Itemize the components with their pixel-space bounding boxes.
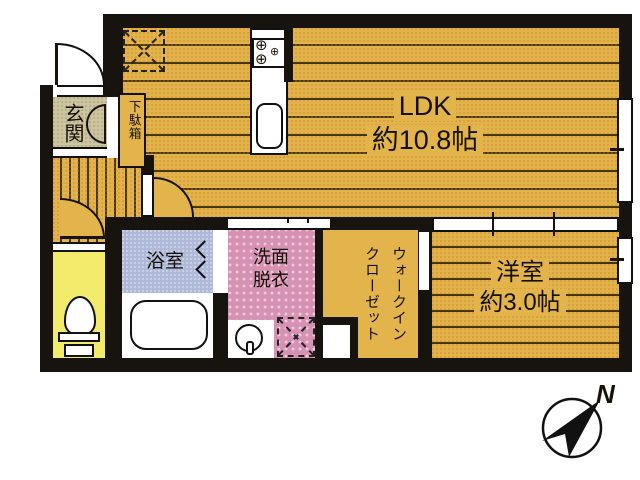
room-western-name: 洋室 xyxy=(491,259,549,286)
room-washroom-label: 洗面 脱衣 xyxy=(230,246,312,291)
toilet-seat xyxy=(58,332,100,342)
room-wic-label: ウォークイン クローゼット xyxy=(350,234,412,354)
wall-bottom xyxy=(40,358,632,372)
wic-western-opening xyxy=(419,232,429,290)
refrigerator-space xyxy=(123,30,165,72)
room-western-size: 約3.0帖 xyxy=(474,289,565,316)
wall-above-wic xyxy=(330,217,432,230)
room-bathroom-label: 浴室 xyxy=(127,250,203,274)
ldk-door-leaf xyxy=(141,173,154,217)
toilet-tank xyxy=(64,344,94,357)
room-entrance-label: 玄関 xyxy=(59,101,84,145)
western-sliding-door-tick xyxy=(492,212,494,236)
entrance-door-leaf xyxy=(55,43,58,85)
toilet-threshold xyxy=(53,242,105,252)
entrance-step xyxy=(53,147,107,158)
shoe-cabinet-label: 下駄箱 xyxy=(125,100,141,141)
bathroom-door-opening xyxy=(213,230,228,293)
wall-toilet-bath xyxy=(105,230,122,358)
toilet-door-leaf xyxy=(60,236,105,239)
western-window-tick xyxy=(610,258,624,261)
stove-burner-icon: ⊕ xyxy=(255,52,268,67)
entrance-door-threshold xyxy=(57,85,103,97)
ldk-window-tick xyxy=(610,148,624,151)
washing-machine-space xyxy=(277,317,315,357)
hallway-floor-ext xyxy=(118,168,141,217)
wall-ldk-left xyxy=(103,14,123,97)
stove-burner-icon: ⊕ xyxy=(270,47,279,58)
wall-hall-bath xyxy=(105,217,228,230)
kitchen-sink xyxy=(256,103,283,149)
room-ldk-name: LDK xyxy=(394,91,457,121)
bathtub xyxy=(130,300,208,350)
wall-left xyxy=(40,85,53,372)
washroom-sliding-door-tick xyxy=(307,217,309,223)
washbasin-faucet xyxy=(246,341,254,355)
shoe-cabinet: 下駄箱 xyxy=(118,93,146,168)
wall-bath-washroom xyxy=(213,293,228,358)
western-sliding-door-tick xyxy=(553,212,555,236)
wic-entry-opening xyxy=(323,325,350,358)
washroom-sliding-door xyxy=(228,217,330,230)
kitchen-wall-stub xyxy=(284,28,293,82)
wall-top xyxy=(113,14,632,28)
kitchen-stove: ⊕ ⊕ ⊕ xyxy=(252,38,286,68)
floor-plan: ⊕ ⊕ ⊕ 下駄箱 LDK 約10.8帖 洋室 約3.0帖 浴室 洗面 脱衣 玄… xyxy=(0,0,640,480)
compass-north-label: N xyxy=(596,379,615,410)
western-sliding-door xyxy=(432,217,619,232)
shoe-closet-bifold-jamb xyxy=(104,104,106,144)
washroom-sliding-door-tick xyxy=(287,217,289,223)
wall-washroom-wic xyxy=(315,228,323,358)
room-ldk-size: 約10.8帖 xyxy=(367,125,484,155)
entrance-door-arc xyxy=(57,43,105,85)
entrance-inner-opening xyxy=(107,97,118,155)
room-ldk-label: LDK 約10.8帖 xyxy=(340,90,510,158)
room-western-label: 洋室 約3.0帖 xyxy=(455,258,585,318)
